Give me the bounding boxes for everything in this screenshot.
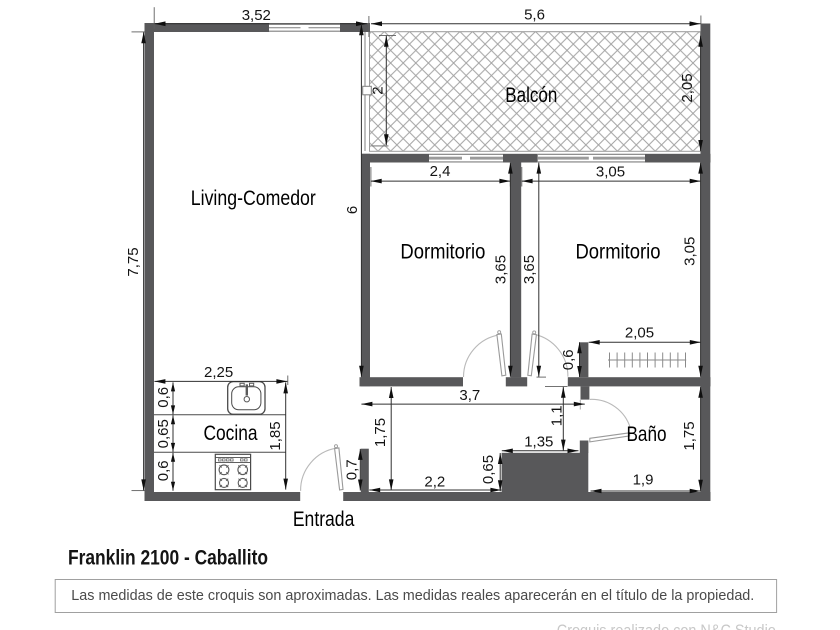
svg-text:0,65: 0,65 bbox=[480, 455, 497, 484]
svg-text:Balcón: Balcón bbox=[505, 84, 557, 107]
svg-text:1,9: 1,9 bbox=[633, 472, 654, 489]
svg-text:0,6: 0,6 bbox=[155, 460, 172, 481]
svg-text:2,05: 2,05 bbox=[625, 325, 654, 342]
svg-text:1,85: 1,85 bbox=[267, 421, 284, 450]
svg-text:3,05: 3,05 bbox=[596, 164, 625, 181]
svg-text:2,2: 2,2 bbox=[424, 473, 445, 490]
svg-text:6: 6 bbox=[344, 206, 361, 214]
svg-text:0,7: 0,7 bbox=[344, 459, 361, 480]
svg-text:3,05: 3,05 bbox=[682, 237, 699, 266]
svg-text:Croquis realizado con N&C Stud: Croquis realizado con N&C Studio bbox=[557, 622, 776, 630]
svg-text:0,65: 0,65 bbox=[155, 419, 172, 448]
svg-text:2,4: 2,4 bbox=[430, 163, 451, 180]
svg-text:1,75: 1,75 bbox=[681, 421, 698, 450]
svg-text:0,6: 0,6 bbox=[560, 349, 577, 370]
svg-text:3,65: 3,65 bbox=[521, 255, 538, 284]
svg-text:Baño: Baño bbox=[627, 423, 667, 446]
svg-text:3,7: 3,7 bbox=[459, 387, 480, 404]
svg-text:Dormitorio: Dormitorio bbox=[400, 241, 485, 264]
svg-text:1,75: 1,75 bbox=[372, 418, 389, 447]
svg-text:2,25: 2,25 bbox=[204, 364, 233, 381]
svg-text:2: 2 bbox=[370, 86, 387, 94]
svg-text:5,6: 5,6 bbox=[524, 7, 545, 24]
svg-text:2,05: 2,05 bbox=[679, 73, 696, 102]
svg-text:Entrada: Entrada bbox=[293, 508, 355, 531]
svg-text:3,65: 3,65 bbox=[492, 255, 509, 284]
svg-text:Las medidas de este croquis so: Las medidas de este croquis son aproxima… bbox=[71, 588, 754, 604]
svg-text:0,6: 0,6 bbox=[155, 387, 172, 408]
svg-text:1,35: 1,35 bbox=[524, 433, 553, 450]
svg-text:3,52: 3,52 bbox=[242, 7, 271, 24]
svg-text:Franklin 2100 - Caballito: Franklin 2100 - Caballito bbox=[68, 547, 268, 570]
svg-text:1,1: 1,1 bbox=[548, 405, 565, 426]
svg-text:Dormitorio: Dormitorio bbox=[576, 241, 661, 264]
svg-text:Cocina: Cocina bbox=[204, 422, 258, 445]
svg-text:7,75: 7,75 bbox=[125, 247, 142, 276]
svg-text:Living-Comedor: Living-Comedor bbox=[191, 187, 316, 210]
